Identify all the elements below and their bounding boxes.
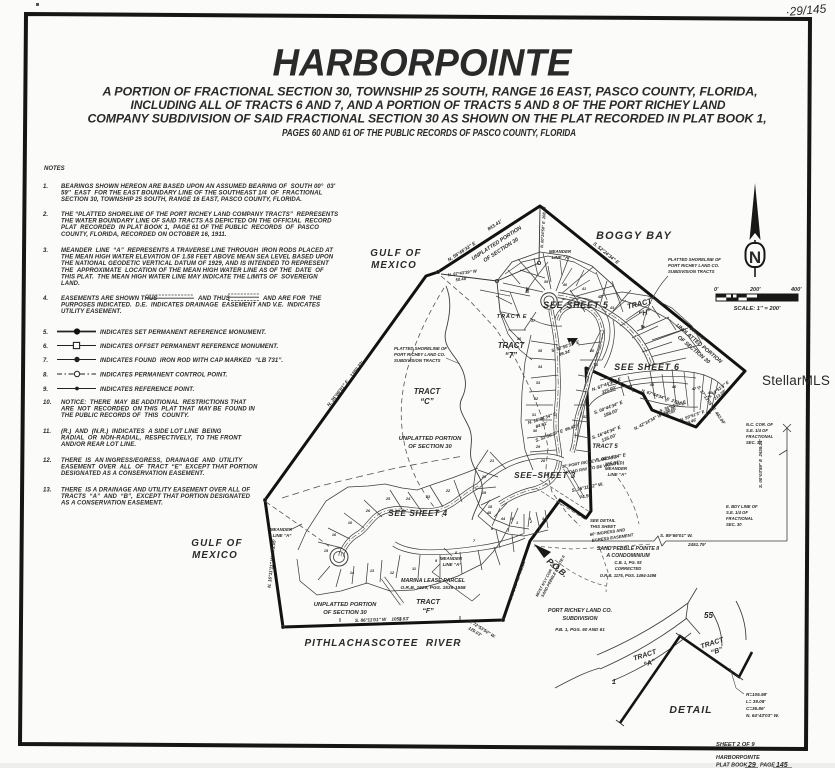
svg-text:2.: 2. [42, 212, 48, 218]
svg-text:10.: 10. [43, 400, 52, 406]
svg-text:29: 29 [535, 445, 541, 449]
svg-text:UTILITY EASEMENT.: UTILITY EASEMENT. [61, 309, 122, 315]
svg-text:N. 64°43′03″ W.: N. 64°43′03″ W. [746, 713, 779, 718]
svg-text:UNPLATTED PORTION: UNPLATTED PORTION [314, 602, 377, 608]
svg-text:SHEET 2 OF 9: SHEET 2 OF 9 [716, 742, 755, 748]
svg-text:PORT RICHEY LAND CO.: PORT RICHEY LAND CO. [394, 352, 445, 357]
svg-text:MEANDER LINE “A” REPRESENTS: MEANDER LINE “A” REPRESENTS A TRAVERSE L… [61, 248, 334, 254]
svg-text:LINE “A”: LINE “A” [443, 562, 463, 567]
svg-text:9.: 9. [43, 387, 48, 393]
svg-text:COUNTY, FLORIDA, RECORDED ON O: COUNTY, FLORIDA, RECORDED ON OCTOBER 16,… [61, 232, 227, 238]
svg-text:1: 1 [612, 679, 616, 686]
svg-text:44: 44 [500, 517, 506, 521]
svg-text:NOTICE: THERE MAY BE ADDITI: NOTICE: THERE MAY BE ADDITIONAL RESTRICT… [61, 400, 247, 406]
svg-text:SEE SHEET 4: SEE SHEET 4 [388, 509, 447, 518]
svg-text:PLAT BOOK: PLAT BOOK [716, 763, 748, 768]
svg-text:S.E. 1/4 OF: S.E. 1/4 OF [746, 428, 768, 433]
svg-text:AS A CONSERVATION EASEMENT.: AS A CONSERVATION EASEMENT. [60, 501, 163, 507]
svg-text:O.R.B. 1175, PGS. 1494-1498: O.R.B. 1175, PGS. 1494-1498 [600, 573, 657, 578]
svg-text:AND THUS: AND THUS [197, 296, 230, 302]
svg-text:N.C. COR. OF: N.C. COR. OF [746, 422, 773, 427]
svg-text:THIS PLAT. THE MEAN HIGH WATE: THIS PLAT. THE MEAN HIGH WATER LINE MAY … [61, 274, 318, 280]
svg-text:AND/OR REAR LOT LINE.: AND/OR REAR LOT LINE. [60, 442, 136, 448]
svg-text:29: 29 [747, 762, 756, 768]
svg-text:5.: 5. [43, 330, 48, 336]
svg-text:NOTES: NOTES [44, 166, 65, 172]
svg-text:THE PUBLIC RECORDS OF THIS C: THE PUBLIC RECORDS OF THIS COUNTY. [61, 413, 189, 419]
svg-text:OF SECTION 30: OF SECTION 30 [408, 444, 452, 450]
svg-text:C=36.86′: C=36.86′ [746, 706, 765, 711]
svg-text:22: 22 [445, 489, 451, 493]
svg-text:“7”: “7” [505, 351, 517, 360]
svg-text:TRACTS “A” AND “B”, EXCEPT: TRACTS “A” AND “B”, EXCEPT THAT PORTION … [61, 494, 251, 500]
svg-text:ARE NOT RECORDED ON THIS P: ARE NOT RECORDED ON THIS PLAT THAT MAY B… [60, 407, 255, 413]
svg-text:2451.79′: 2451.79′ [687, 542, 707, 547]
svg-text:BEARINGS SHOWN HEREON ARE BASE: BEARINGS SHOWN HEREON ARE BASED UPON AN … [61, 184, 336, 190]
svg-text:145: 145 [776, 762, 788, 768]
svg-text:SUBDIVISION TRACTS: SUBDIVISION TRACTS [394, 358, 441, 363]
svg-text:SAND PEBBLE POINTE II: SAND PEBBLE POINTE II [597, 546, 660, 552]
svg-text:23: 23 [425, 495, 431, 499]
svg-text:“F”: “F” [422, 608, 434, 615]
svg-text:UNPLATTED PORTION: UNPLATTED PORTION [399, 436, 462, 442]
svg-text:THE NATIONAL GEODETIC VERTICAL: THE NATIONAL GEODETIC VERTICAL DATUM OF … [61, 261, 330, 267]
svg-text:MEANDER: MEANDER [549, 249, 572, 254]
svg-text:PAGE: PAGE [760, 763, 775, 768]
svg-text:PORT RICHEY LAND CO.: PORT RICHEY LAND CO. [668, 263, 719, 268]
svg-text:47: 47 [691, 387, 697, 391]
svg-text:MEANDER: MEANDER [605, 466, 628, 471]
svg-text:BOGGY BAY: BOGGY BAY [596, 230, 672, 242]
svg-text:TRACT: TRACT [416, 599, 440, 606]
svg-text:RADIAL OR NON-RADIAL, RESPE: RADIAL OR NON-RADIAL, RESPECTIVELY, TO T… [61, 436, 243, 442]
svg-text:31: 31 [532, 413, 536, 417]
svg-text:MEANDER: MEANDER [440, 556, 463, 561]
svg-text:THE WATER BOUNDARY LINE OF SAI: THE WATER BOUNDARY LINE OF SAID TRACTS A… [61, 219, 332, 225]
svg-text:INDICATES SET PERMANENT REFERE: INDICATES SET PERMANENT REFERENCE MONUME… [100, 330, 266, 336]
svg-text:42: 42 [597, 295, 603, 299]
svg-text:44: 44 [627, 385, 633, 389]
svg-text:FRACTIONAL: FRACTIONAL [726, 516, 754, 521]
svg-text:3.: 3. [43, 248, 48, 254]
svg-text:S.E. 1/4 OF: S.E. 1/4 OF [726, 510, 748, 515]
svg-text:11.: 11. [43, 429, 51, 435]
svg-text:L= 39.08′: L= 39.08′ [746, 699, 766, 704]
svg-text:S. 89°56′01″ W.: S. 89°56′01″ W. [660, 533, 693, 538]
svg-text:20: 20 [481, 475, 487, 479]
svg-text:TRACT: TRACT [414, 387, 442, 396]
svg-text:24: 24 [405, 497, 411, 501]
svg-text:INCLUDING ALL OF TRACTS 6 AND: INCLUDING ALL OF TRACTS 6 AND 7, AND A P… [131, 98, 726, 112]
svg-text:59″ EAST FOR THE EAST BOUNDA: 59″ EAST FOR THE EAST BOUNDARY LINE OF T… [61, 191, 323, 197]
svg-text:1: 1 [516, 521, 518, 525]
svg-text:MEXICO: MEXICO [192, 550, 238, 561]
svg-text:(R.) AND (N.R.) INDICATES: (R.) AND (N.R.) INDICATES A SIDE LOT LIN… [61, 429, 222, 435]
svg-text:DESIGNATED AS A CONSERVATION E: DESIGNATED AS A CONSERVATION EASEMENT. [61, 471, 205, 477]
svg-text:INDICATES OFFSET PERMANENT REF: INDICATES OFFSET PERMANENT REFERENCE MON… [100, 344, 279, 350]
svg-text:SUBDIVISION TRACTS: SUBDIVISION TRACTS [668, 269, 715, 274]
svg-text:PITHLACHASCOTEE RIVER: PITHLACHASCOTEE RIVER [304, 638, 461, 649]
svg-text:LINE “A”: LINE “A” [608, 472, 628, 477]
svg-text:SCALE: 1″ = 200′: SCALE: 1″ = 200′ [734, 306, 781, 312]
svg-text:INDICATES FOUND IRON ROD WITH: INDICATES FOUND IRON ROD WITH CAP MARKED… [100, 358, 283, 364]
svg-text:INDICATES PERMANENT CONTROL PO: INDICATES PERMANENT CONTROL POINT. [100, 373, 228, 379]
svg-text:48: 48 [707, 391, 713, 395]
svg-text:E. BDY LINE OF: E. BDY LINE OF [726, 504, 758, 509]
svg-text:13.: 13. [43, 488, 52, 494]
svg-text:TRACT E: TRACT E [497, 314, 528, 320]
svg-text:4.: 4. [42, 296, 48, 302]
svg-text:S. 00°03′59″ E 2639.24′: S. 00°03′59″ E 2639.24′ [758, 439, 763, 488]
svg-text:12.: 12. [43, 458, 52, 464]
svg-text:C.B. 1, PG. 93: C.B. 1, PG. 93 [614, 560, 642, 565]
svg-text:SEE DETAIL: SEE DETAIL [590, 518, 616, 523]
svg-text:O.R.B. 1629, PGS. 1539-1568: O.R.B. 1629, PGS. 1539-1568 [400, 585, 465, 591]
svg-text:21: 21 [489, 459, 494, 463]
svg-text:SECTION 30, TOWNSHIP 25 SOUTH,: SECTION 30, TOWNSHIP 25 SOUTH, RANGE 16 … [61, 197, 302, 203]
svg-text:P.B. 1, PGS. 60 AND 61: P.B. 1, PGS. 60 AND 61 [555, 627, 605, 632]
svg-text:SEE SHEET 6: SEE SHEET 6 [614, 362, 680, 372]
svg-text:28: 28 [540, 459, 546, 463]
svg-text:R=105.98′: R=105.98′ [746, 692, 768, 697]
svg-text:11: 11 [412, 567, 416, 571]
svg-text:6.: 6. [43, 344, 48, 350]
svg-text:200′: 200′ [749, 287, 761, 293]
svg-text:MEXICO: MEXICO [371, 260, 417, 271]
svg-text:THE APPROXIMATE LOCATION OF: THE APPROXIMATE LOCATION OF THE MEAN HIG… [61, 268, 324, 274]
svg-text:TRACT 5: TRACT 5 [592, 444, 618, 450]
svg-text:PLAT RECORDED IN PLAT BOOK 1: PLAT RECORDED IN PLAT BOOK 1, PAGE 61 OF… [61, 225, 319, 231]
svg-text:PAGES 60 AND 61 OF THE PUBLIC: PAGES 60 AND 61 OF THE PUBLIC RECORDS OF… [282, 127, 576, 139]
svg-text:“C”: “C” [420, 397, 434, 406]
svg-text:7.: 7. [43, 358, 48, 364]
svg-text:A PORTION OF FRACTIONAL SECTIO: A PORTION OF FRACTIONAL SECTION 30, TOWN… [101, 85, 757, 99]
svg-text:HARBORPOINTE: HARBORPOINTE [716, 755, 760, 761]
svg-text:8.: 8. [43, 373, 48, 379]
svg-text:DETAIL: DETAIL [669, 704, 712, 716]
svg-text:TRACT: TRACT [498, 341, 526, 350]
svg-text:400′: 400′ [790, 287, 802, 293]
svg-text:43: 43 [609, 306, 615, 310]
svg-text:THERE IS AN INGRESS/EGRESS,: THERE IS AN INGRESS/EGRESS, DRAINAGE AND… [61, 458, 243, 464]
svg-text:EASEMENTS ARE SHOWN THUS: EASEMENTS ARE SHOWN THUS [61, 296, 158, 302]
svg-text:COMPANY SUBDIVISION OF SAID FR: COMPANY SUBDIVISION OF SAID FRACTIONAL S… [88, 112, 767, 126]
svg-text:THE “PLATTED SHORELINE OF THE: THE “PLATTED SHORELINE OF THE PORT RICHE… [61, 212, 338, 218]
svg-text:FRACTIONAL: FRACTIONAL [746, 434, 774, 439]
svg-text:StellarMLS: StellarMLS [762, 373, 830, 388]
svg-text:THERE IS A DRAINAGE AND UTILI: THERE IS A DRAINAGE AND UTILITY EASEMENT… [61, 488, 250, 494]
svg-text:LINE “A”: LINE “A” [552, 255, 572, 260]
svg-text:CORRECTED: CORRECTED [615, 566, 642, 571]
svg-text:1.: 1. [43, 184, 48, 190]
svg-text:45: 45 [486, 511, 492, 515]
svg-text:GULF OF: GULF OF [191, 538, 242, 549]
svg-text:26: 26 [365, 509, 371, 513]
svg-text:45: 45 [649, 383, 655, 387]
svg-text:OF SECTION 30: OF SECTION 30 [323, 610, 367, 616]
svg-text:N: N [749, 248, 761, 267]
svg-text:SUBDIVISION: SUBDIVISION [562, 616, 597, 622]
svg-text:51: 51 [594, 363, 598, 367]
svg-text:GULF OF: GULF OF [370, 248, 421, 259]
svg-text:SEC. 30: SEC. 30 [726, 522, 742, 527]
svg-text:EASEMENT OVER ALL OF TRACT: EASEMENT OVER ALL OF TRACT “E” EXCEPT TH… [61, 465, 258, 471]
svg-text:A CONDOMINIUM: A CONDOMINIUM [605, 553, 650, 559]
svg-text:55: 55 [704, 611, 713, 620]
svg-text:AND ARE FOR THE: AND ARE FOR THE [262, 296, 322, 302]
svg-text:MEANDER: MEANDER [270, 527, 293, 532]
svg-text:SEE SHEET 5: SEE SHEET 5 [543, 300, 609, 310]
svg-text:LINE “A”: LINE “A” [273, 533, 293, 538]
svg-text:PORT RICHEY LAND CO.: PORT RICHEY LAND CO. [548, 608, 613, 614]
svg-text:40: 40 [562, 283, 568, 287]
svg-text:41: 41 [581, 287, 586, 291]
svg-text:PLATTED SHORELINE OF: PLATTED SHORELINE OF [668, 257, 721, 262]
svg-text:HARBORPOINTE: HARBORPOINTE [273, 43, 574, 85]
svg-text:46: 46 [671, 385, 677, 389]
svg-text:MARINA LEASE PARCEL: MARINA LEASE PARCEL [401, 578, 465, 584]
svg-text:THE MEAN HIGH WATER ELEVATION: THE MEAN HIGH WATER ELEVATION OF 1.58 FE… [61, 255, 334, 261]
svg-text:LAND.: LAND. [61, 281, 80, 287]
svg-text:PURPOSES INDICATED. D.E. IND: PURPOSES INDICATED. D.E. INDICATES DRAIN… [61, 303, 320, 309]
svg-text:0′: 0′ [714, 287, 719, 293]
svg-text:25: 25 [385, 497, 391, 501]
svg-text:PLATTED SHORELINE OF: PLATTED SHORELINE OF [394, 346, 447, 351]
svg-text:INDICATES REFERENCE POINT.: INDICATES REFERENCE POINT. [100, 387, 195, 393]
